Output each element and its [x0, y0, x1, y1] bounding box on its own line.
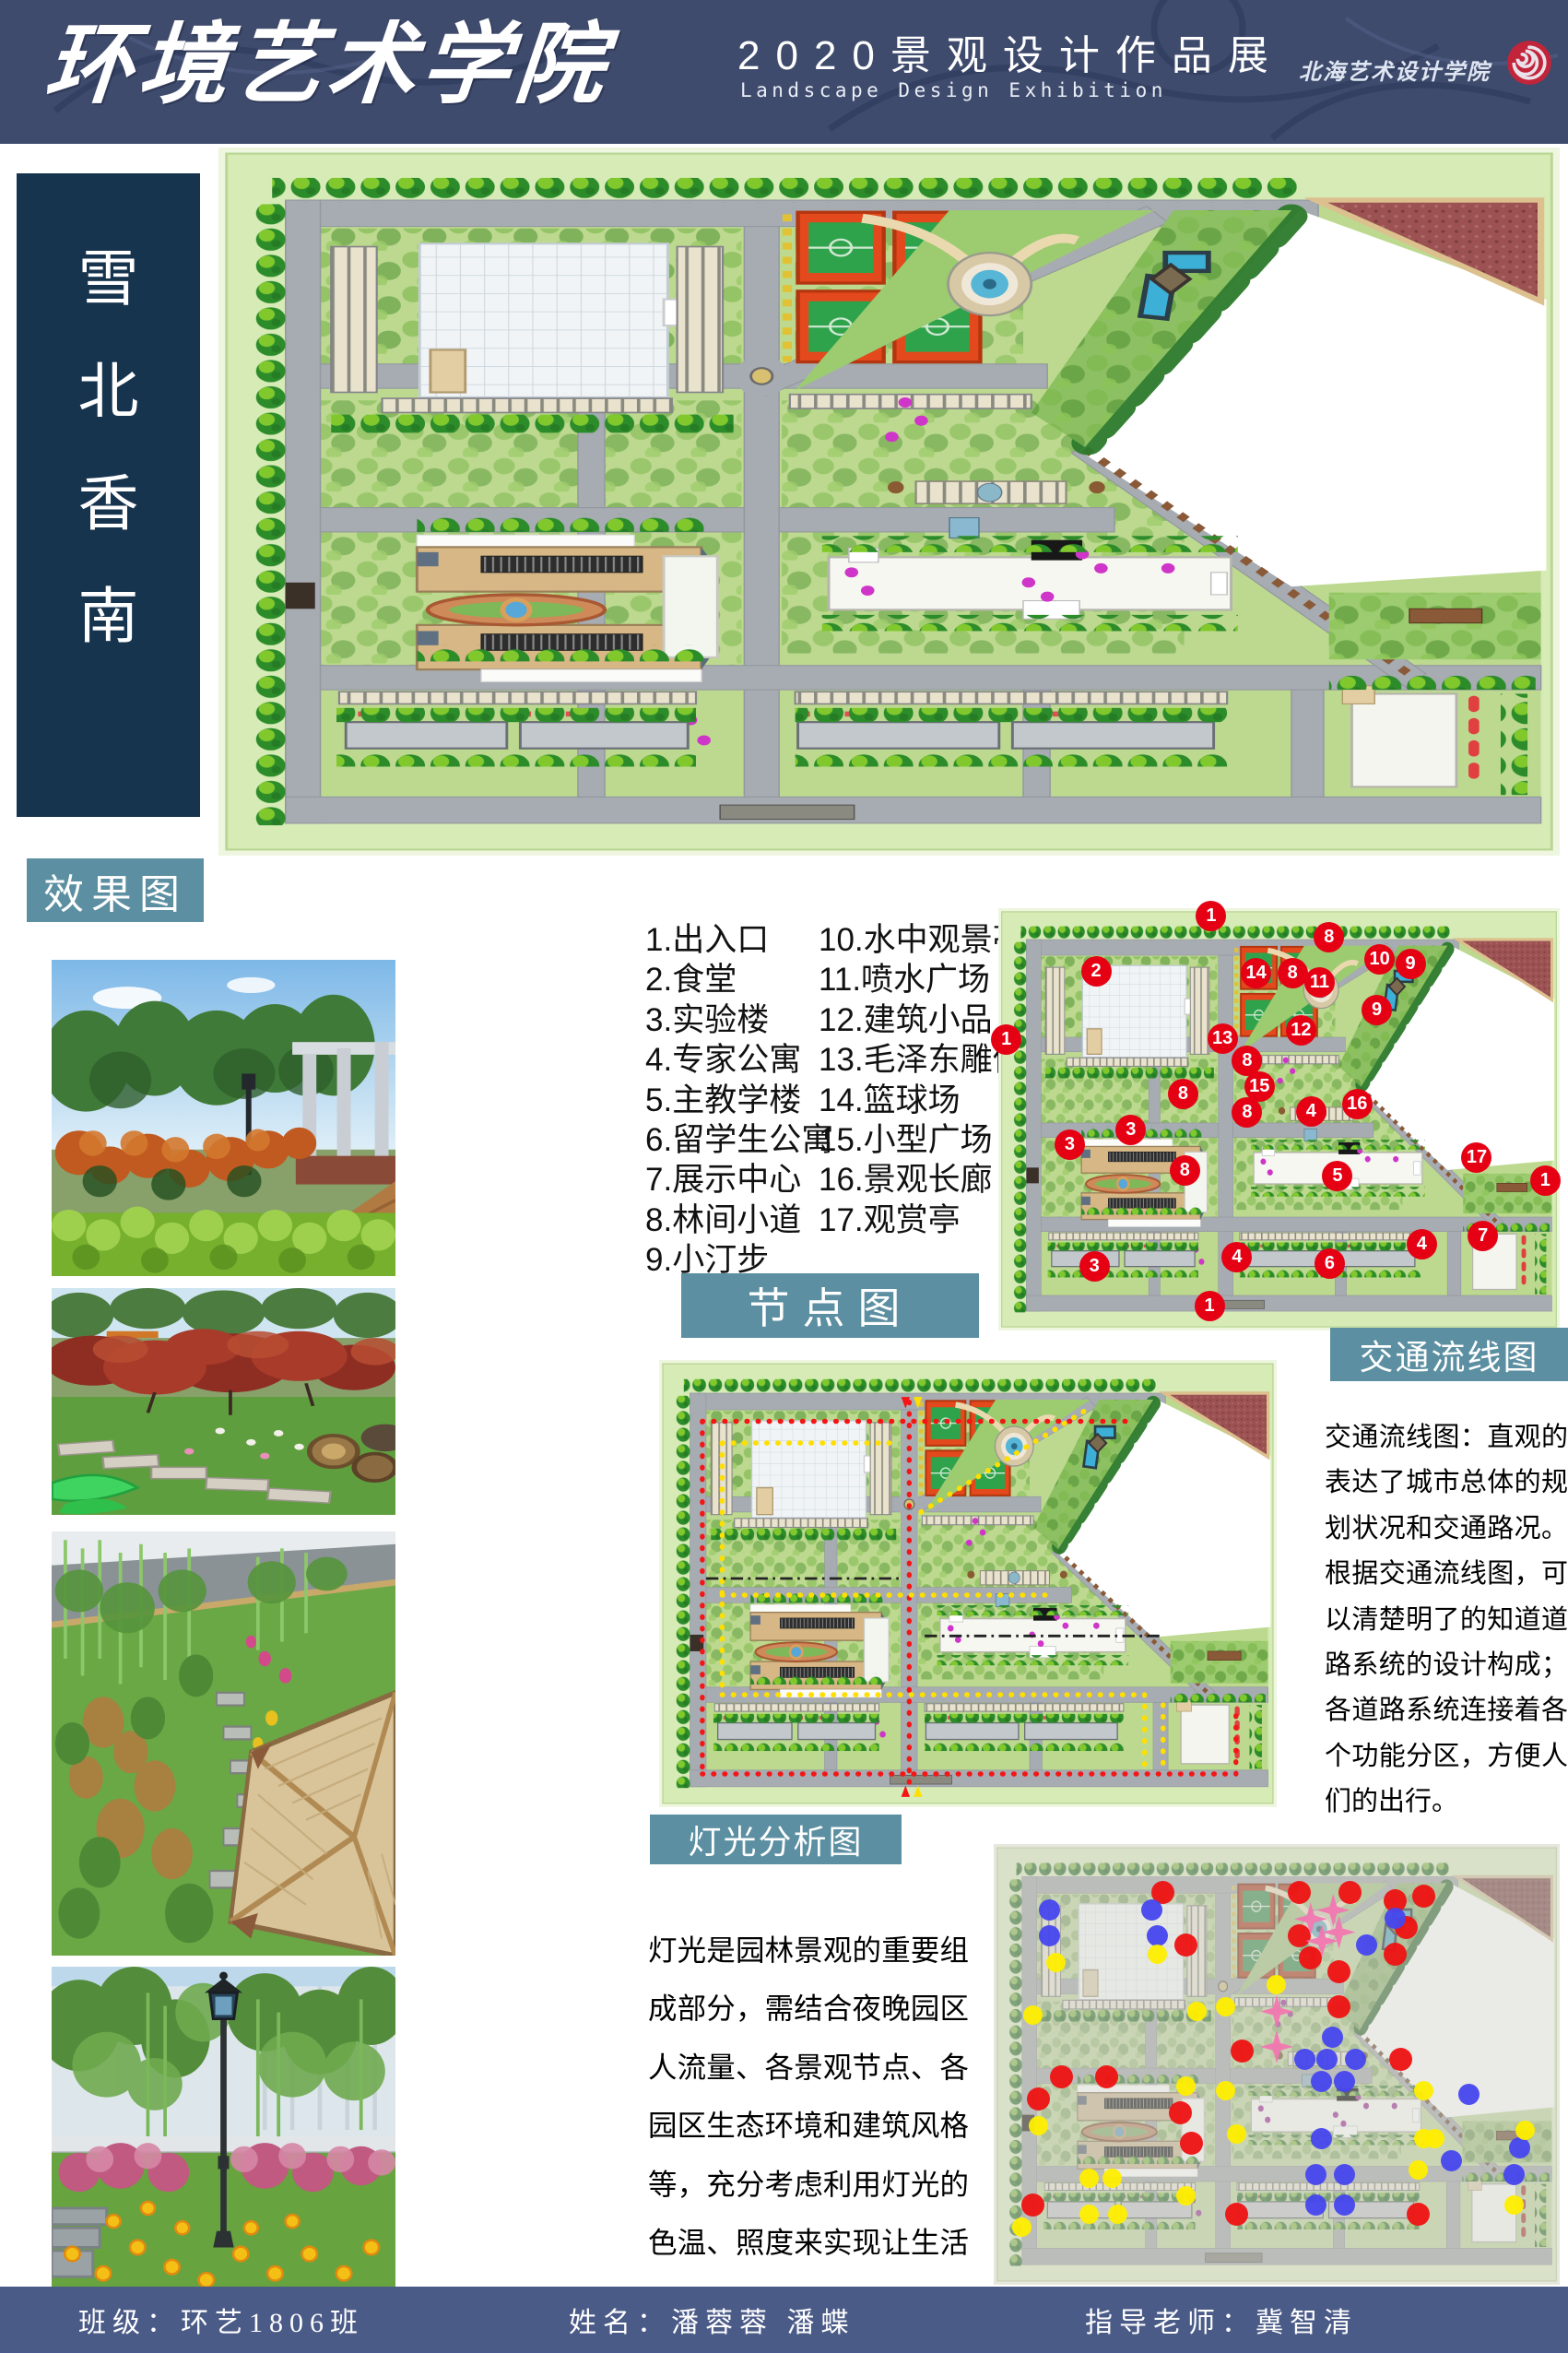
light-point-yellow	[1108, 2205, 1127, 2224]
light-point-yellow	[1409, 2160, 1428, 2180]
light-point-yellow	[1046, 1953, 1066, 1972]
legend-item: 1.出入口	[645, 920, 819, 960]
light-point-yellow	[1079, 2205, 1099, 2224]
footer-class: 班级：环艺1806班	[78, 2300, 364, 2340]
node-marker: 3	[1079, 1251, 1110, 1282]
node-marker: 9	[1396, 949, 1426, 979]
institute-spiral-logo-icon	[1503, 37, 1555, 89]
light-point-red	[1225, 2203, 1248, 2226]
legend-item: 15.小型广场	[819, 1120, 1014, 1160]
light-point-red	[1288, 1881, 1311, 1904]
light-point-blue	[1509, 2137, 1530, 2158]
legend-item: 2.食堂	[645, 960, 819, 999]
light-points-layer	[994, 1844, 1560, 2285]
light-point-yellow	[1504, 2195, 1524, 2215]
exhibition-subtitle-en: Landscape Design Exhibition	[740, 79, 1167, 101]
node-marker: 1	[991, 1024, 1021, 1055]
light-point-red	[1384, 1943, 1407, 1966]
light-point-yellow	[1414, 2129, 1433, 2148]
exhibition-poster: 环境艺术学院 2020景观设计作品展 Landscape Design Exhi…	[0, 0, 1568, 2353]
node-marker: 8	[1278, 958, 1308, 988]
light-star	[1260, 1995, 1293, 2028]
project-title-char: 北	[78, 360, 139, 422]
light-point-red	[1288, 1924, 1311, 1947]
light-point-yellow	[1029, 2116, 1048, 2135]
node-marker: 10	[1364, 944, 1395, 975]
render-photo-pergola-garden	[52, 960, 395, 1276]
light-point-blue	[1334, 2194, 1355, 2216]
node-marker: 17	[1461, 1142, 1491, 1173]
node-marker: 8	[1314, 922, 1344, 952]
render-photo-pavilion-aerial	[52, 1531, 395, 1956]
light-point-yellow	[1414, 2081, 1433, 2100]
legend-item: 16.景观长廊	[819, 1160, 1014, 1200]
footer-names: 姓名：潘蓉蓉 潘蝶	[569, 2300, 855, 2340]
legend-item: 5.主教学楼	[645, 1081, 819, 1120]
light-point-blue	[1311, 2071, 1332, 2092]
lighting-analysis-map	[994, 1844, 1560, 2285]
node-marker: 3	[1055, 1129, 1085, 1160]
light-point-blue	[1316, 2049, 1338, 2070]
light-point-red	[1169, 2101, 1192, 2124]
node-marker: 13	[1208, 1023, 1238, 1054]
light-point-red	[1299, 1946, 1322, 1969]
light-point-yellow	[1079, 2169, 1099, 2188]
node-marker: 9	[1362, 995, 1392, 1025]
light-point-blue	[1311, 2128, 1332, 2149]
node-marker: 2	[1081, 956, 1112, 987]
node-marker: 1	[1196, 901, 1226, 931]
light-point-blue	[1441, 2150, 1462, 2171]
light-point-red	[1180, 2132, 1203, 2155]
light-point-red	[1095, 2065, 1118, 2088]
node-marker: 14	[1241, 958, 1271, 988]
light-point-red	[1174, 1933, 1197, 1957]
legend-item: 3.实验楼	[645, 1000, 819, 1040]
legend-column-1: 1.出入口 2.食堂 3.实验楼 4.专家公寓 5.主教学楼 6.留学生公寓 7…	[645, 920, 819, 1282]
light-point-blue	[1334, 2164, 1355, 2185]
light-point-yellow	[1023, 2005, 1043, 2025]
light-point-yellow	[1216, 1997, 1235, 2016]
light-point-red	[1327, 1960, 1350, 1983]
node-map: 12814810911912131815884163381715746431	[998, 908, 1560, 1330]
legend-item: 13.毛泽东雕像	[819, 1040, 1014, 1080]
light-star	[1260, 2030, 1293, 2063]
footer-advisor: 指导老师：冀智清	[1085, 2300, 1358, 2340]
light-point-blue	[1458, 2084, 1480, 2105]
light-point-blue	[1322, 2027, 1343, 2048]
render-photo-red-maples	[52, 1288, 395, 1515]
light-point-red	[1027, 2087, 1050, 2111]
light-point-blue	[1345, 2049, 1366, 2070]
page-title: 环境艺术学院	[41, 0, 616, 121]
node-marker: 5	[1322, 1161, 1352, 1191]
legend-item: 12.建筑小品	[819, 1000, 1014, 1040]
light-point-red	[1407, 2203, 1430, 2226]
nodes-section-label: 节点图	[681, 1273, 979, 1338]
project-title-char: 南	[78, 585, 139, 647]
light-point-yellow	[1227, 2124, 1246, 2144]
legend-item: 7.展示中心	[645, 1160, 819, 1200]
light-point-blue	[1503, 2164, 1525, 2185]
legend-item: 4.专家公寓	[645, 1040, 819, 1080]
node-marker: 4	[1296, 1096, 1326, 1127]
header-band: 环境艺术学院 2020景观设计作品展 Landscape Design Exhi…	[0, 0, 1568, 144]
node-marker: 1	[1195, 1291, 1225, 1321]
lighting-section-label: 灯光分析图	[650, 1815, 902, 1864]
light-point-blue	[1334, 2071, 1355, 2092]
light-point-red	[1050, 2065, 1073, 2088]
render-photo-lamp-garden	[52, 1967, 395, 2293]
traffic-route-lines	[659, 1360, 1277, 1807]
light-point-yellow	[1176, 2076, 1196, 2096]
renderings-section-label: 效果图	[27, 858, 204, 922]
light-point-yellow	[1515, 2121, 1535, 2140]
legend-item: 10.水中观景亭	[819, 920, 1014, 960]
traffic-section-label: 交通流线图	[1330, 1328, 1568, 1381]
footer-bar: 班级：环艺1806班 姓名：潘蓉蓉 潘蝶 指导老师：冀智清	[0, 2287, 1568, 2353]
node-marker: 11	[1304, 967, 1335, 998]
light-point-red	[1327, 1995, 1350, 2018]
legend-item: 8.林间小道	[645, 1200, 819, 1240]
light-point-red	[1412, 1885, 1435, 1908]
lighting-description: 灯光是园林景观的重要组成部分，需结合夜晚园区人流量、各景观节点、各园区生态环境和…	[648, 1921, 969, 2332]
node-marker: 6	[1315, 1248, 1345, 1279]
light-point-red	[1338, 1881, 1362, 1904]
node-marker: 8	[1170, 1155, 1200, 1186]
light-point-red	[1231, 2040, 1254, 2063]
light-point-yellow	[1267, 1975, 1286, 1994]
node-marker: 7	[1468, 1221, 1498, 1251]
node-marker: 12	[1286, 1015, 1316, 1046]
light-point-blue	[1294, 2049, 1315, 2070]
node-marker: 16	[1342, 1089, 1373, 1119]
light-point-blue	[1039, 1925, 1060, 1946]
legend-item: 6.留学生公寓	[645, 1120, 819, 1160]
light-point-blue	[1356, 1934, 1377, 1956]
master-plan-map	[218, 148, 1560, 856]
legend-column-2: 10.水中观景亭 11.喷水广场 12.建筑小品 13.毛泽东雕像 14.篮球场…	[819, 920, 1014, 1282]
light-point-blue	[1147, 1925, 1168, 1946]
light-point-blue	[1039, 1899, 1060, 1921]
node-marker: 8	[1168, 1079, 1198, 1109]
project-title-char: 雪	[78, 247, 139, 310]
light-point-red	[1389, 2048, 1412, 2071]
node-marker: 3	[1115, 1115, 1146, 1145]
traffic-description: 交通流线图：直观的表达了城市总体的规划状况和交通路况。根据交通流线图，可以清楚明…	[1325, 1415, 1568, 1826]
exhibition-subtitle-cn: 2020景观设计作品展	[737, 22, 1284, 81]
legend-item: 14.篮球场	[819, 1081, 1014, 1120]
light-point-red	[1021, 2193, 1044, 2217]
traffic-flow-map	[659, 1360, 1277, 1807]
node-marker: 8	[1232, 1097, 1262, 1128]
light-point-yellow	[1187, 2002, 1207, 2021]
node-markers-layer: 12814810911912131815884163381715746431	[998, 908, 1560, 1330]
legend-item: 11.喷水广场	[819, 960, 1014, 999]
node-marker: 4	[1407, 1229, 1437, 1259]
light-point-yellow	[1148, 1945, 1167, 1964]
light-point-yellow	[1102, 2169, 1122, 2188]
legend-item: 17.观赏亭	[819, 1200, 1014, 1240]
light-point-blue	[1305, 2194, 1326, 2216]
light-point-yellow	[1216, 2081, 1235, 2100]
light-point-yellow	[1012, 2217, 1032, 2237]
light-point-blue	[1305, 2164, 1326, 2185]
institute-seal-text: 北海艺术设计学院	[1299, 53, 1491, 86]
light-point-blue	[1141, 1899, 1162, 1921]
project-title-char: 香	[78, 472, 139, 535]
plan-legend: 1.出入口 2.食堂 3.实验楼 4.专家公寓 5.主教学楼 6.留学生公寓 7…	[645, 920, 1014, 1282]
node-marker: 1	[1530, 1165, 1561, 1196]
light-point-yellow	[1176, 2186, 1196, 2205]
node-marker: 4	[1221, 1242, 1252, 1272]
project-title-panel: 雪 北 香 南	[17, 173, 200, 817]
